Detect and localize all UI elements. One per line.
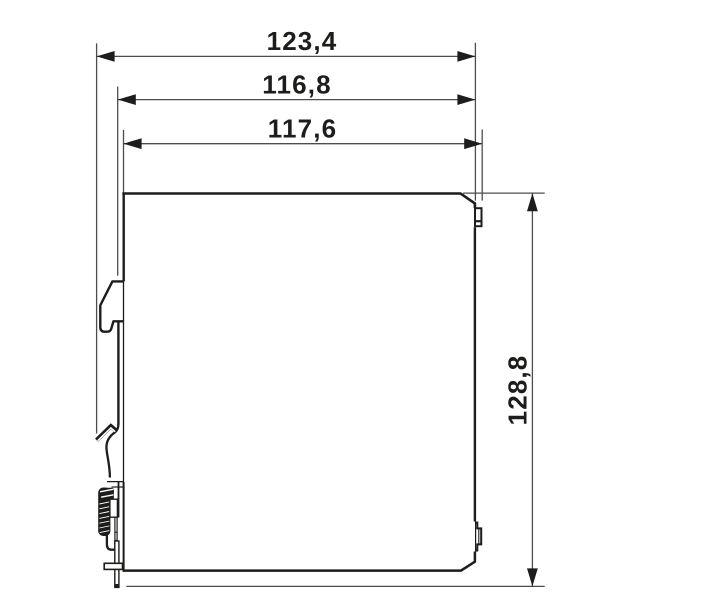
svg-text:116,8: 116,8 [262,70,331,100]
svg-text:117,6: 117,6 [268,113,337,143]
svg-text:123,4: 123,4 [267,26,338,56]
svg-text:128,8: 128,8 [502,355,532,426]
